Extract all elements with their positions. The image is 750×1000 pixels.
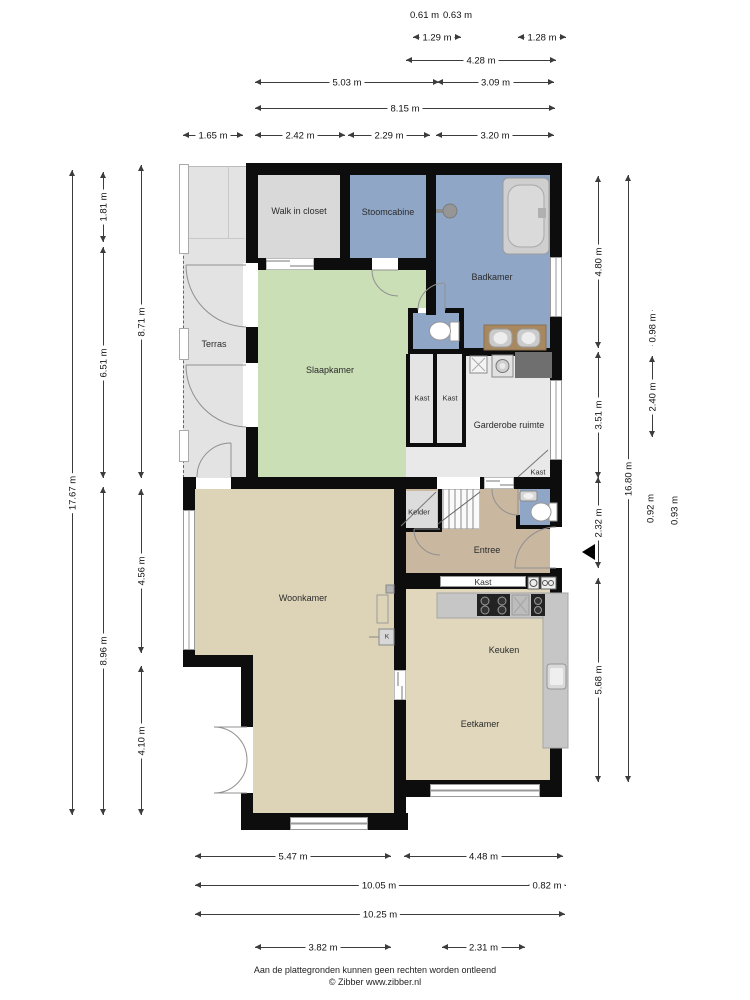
label-eetkamer: Eetkamer: [461, 719, 500, 729]
dim: 8.96 m: [97, 487, 110, 815]
wall: [426, 270, 436, 315]
wall: [438, 489, 442, 530]
disclaimer-line1: Aan de plattegronden kunnen geen rechten…: [0, 964, 750, 976]
dim-label: 0.93 m: [670, 491, 681, 531]
dim: 5.68 m: [592, 578, 605, 782]
dim: 2.29 m: [348, 129, 430, 142]
dim: 5.47 m: [195, 850, 391, 863]
door-gap: [243, 263, 258, 327]
dim: 8.71 m: [135, 165, 148, 478]
wall: [462, 348, 562, 356]
disclaimer: Aan de plattegronden kunnen geen rechten…: [0, 964, 750, 988]
door-gap: [372, 258, 398, 270]
dim: 3.09 m: [437, 76, 554, 89]
dim: 17.67 m: [66, 170, 79, 815]
wall: [550, 317, 562, 380]
label-walk-in-closet: Walk in closet: [271, 206, 326, 216]
label-kast-k: K: [385, 634, 389, 641]
dim: 0.98 m: [646, 310, 659, 346]
wall: [246, 163, 562, 175]
wall: [314, 258, 372, 270]
room-terras: [183, 166, 246, 478]
window: [550, 380, 562, 460]
dim: 2.42 m: [255, 129, 345, 142]
dim: 4.28 m: [406, 54, 556, 67]
label-stoomcabine: Stoomcabine: [362, 207, 415, 217]
floorplan-page: Walk in closet Stoomcabine Badkamer Terr…: [0, 0, 750, 1000]
room-woonkamer-lower: [253, 660, 394, 813]
terras-post: [179, 164, 189, 254]
dim: 8.15 m: [255, 102, 555, 115]
window: [550, 625, 562, 740]
wall: [394, 489, 406, 660]
dim-label: 0.92 m: [646, 489, 657, 529]
door-gap: [243, 363, 258, 427]
room-stairs: [437, 489, 480, 529]
label-kast-c: Kast: [530, 468, 545, 477]
room-toilet-upper: [413, 313, 459, 349]
label-terras: Terras: [201, 339, 226, 349]
dim: 6.51 m: [97, 247, 110, 478]
window: [430, 784, 540, 797]
sliding-door: [266, 258, 314, 270]
dim: 3.82 m: [255, 941, 391, 954]
disclaimer-line2: © Zibber www.zibber.nl: [0, 976, 750, 988]
label-kast-a: Kast: [414, 394, 429, 403]
label-keuken: Keuken: [489, 645, 520, 655]
room-keuken-eetkamer: [406, 589, 550, 780]
dim: 5.03 m: [255, 76, 439, 89]
dim: 2.31 m: [442, 941, 525, 954]
dim: 4.80 m: [592, 176, 605, 348]
sliding-door: [484, 477, 514, 489]
terras-post: [179, 430, 189, 462]
wall: [246, 327, 258, 363]
dim: 1.28 m: [518, 31, 566, 44]
dim: 2.40 m: [646, 356, 659, 437]
dim: 1.81 m: [97, 172, 110, 242]
door-gap: [550, 527, 562, 568]
dim: 10.25 m: [195, 908, 565, 921]
door-gap: [394, 670, 406, 700]
wall: [433, 354, 437, 447]
dim: 0.82 m: [528, 879, 566, 892]
terras-line-v: [228, 166, 229, 238]
terras-post: [179, 328, 189, 360]
room-woonkamer: [195, 489, 394, 660]
room-toilet-lower: [520, 489, 550, 525]
wall: [462, 354, 466, 447]
wall: [394, 660, 406, 670]
window: [550, 257, 562, 317]
dim: 2.32 m: [592, 477, 605, 568]
label-entree: Entree: [474, 545, 501, 555]
label-kelder: Kelder: [408, 508, 430, 517]
dim: 4.10 m: [135, 666, 148, 815]
dim: 10.05 m: [195, 879, 563, 892]
room-slaapkamer-patch: [408, 270, 426, 308]
wall: [550, 460, 562, 527]
wall: [408, 308, 413, 354]
wall: [406, 354, 410, 447]
room-garderobe: [466, 352, 552, 477]
label-kast-d: Kast: [474, 577, 491, 587]
label-kast-b: Kast: [442, 394, 457, 403]
dim-label: 0.63 m: [441, 10, 474, 21]
label-badkamer: Badkamer: [471, 272, 512, 282]
window: [290, 817, 368, 830]
dim-label: 0.61 m: [408, 10, 441, 21]
label-slaapkamer: Slaapkamer: [306, 365, 354, 375]
wall: [183, 477, 196, 489]
dim: 1.65 m: [183, 129, 243, 142]
wall: [550, 568, 562, 625]
dim: 3.20 m: [436, 129, 554, 142]
terras-line-h: [183, 238, 245, 239]
wall: [231, 477, 412, 489]
dim: 1.29 m: [413, 31, 461, 44]
dim: 16.80 m: [622, 175, 635, 782]
label-woonkamer: Woonkamer: [279, 593, 327, 603]
room-walk-in-closet: [258, 175, 340, 258]
wall: [183, 489, 195, 510]
wall: [183, 655, 253, 667]
wall: [426, 163, 436, 270]
wall: [406, 443, 466, 447]
label-garderobe: Garderobe ruimte: [474, 420, 545, 430]
wall: [398, 528, 442, 532]
dim: 4.56 m: [135, 489, 148, 653]
wall: [246, 163, 258, 263]
wall: [340, 175, 350, 258]
wall: [241, 667, 253, 727]
wall: [408, 308, 418, 313]
room-garderobe-lower: [406, 447, 466, 477]
wall: [412, 477, 437, 489]
wall: [550, 163, 562, 257]
dim: 3.51 m: [592, 352, 605, 478]
dim: 4.48 m: [404, 850, 563, 863]
window: [183, 510, 195, 650]
